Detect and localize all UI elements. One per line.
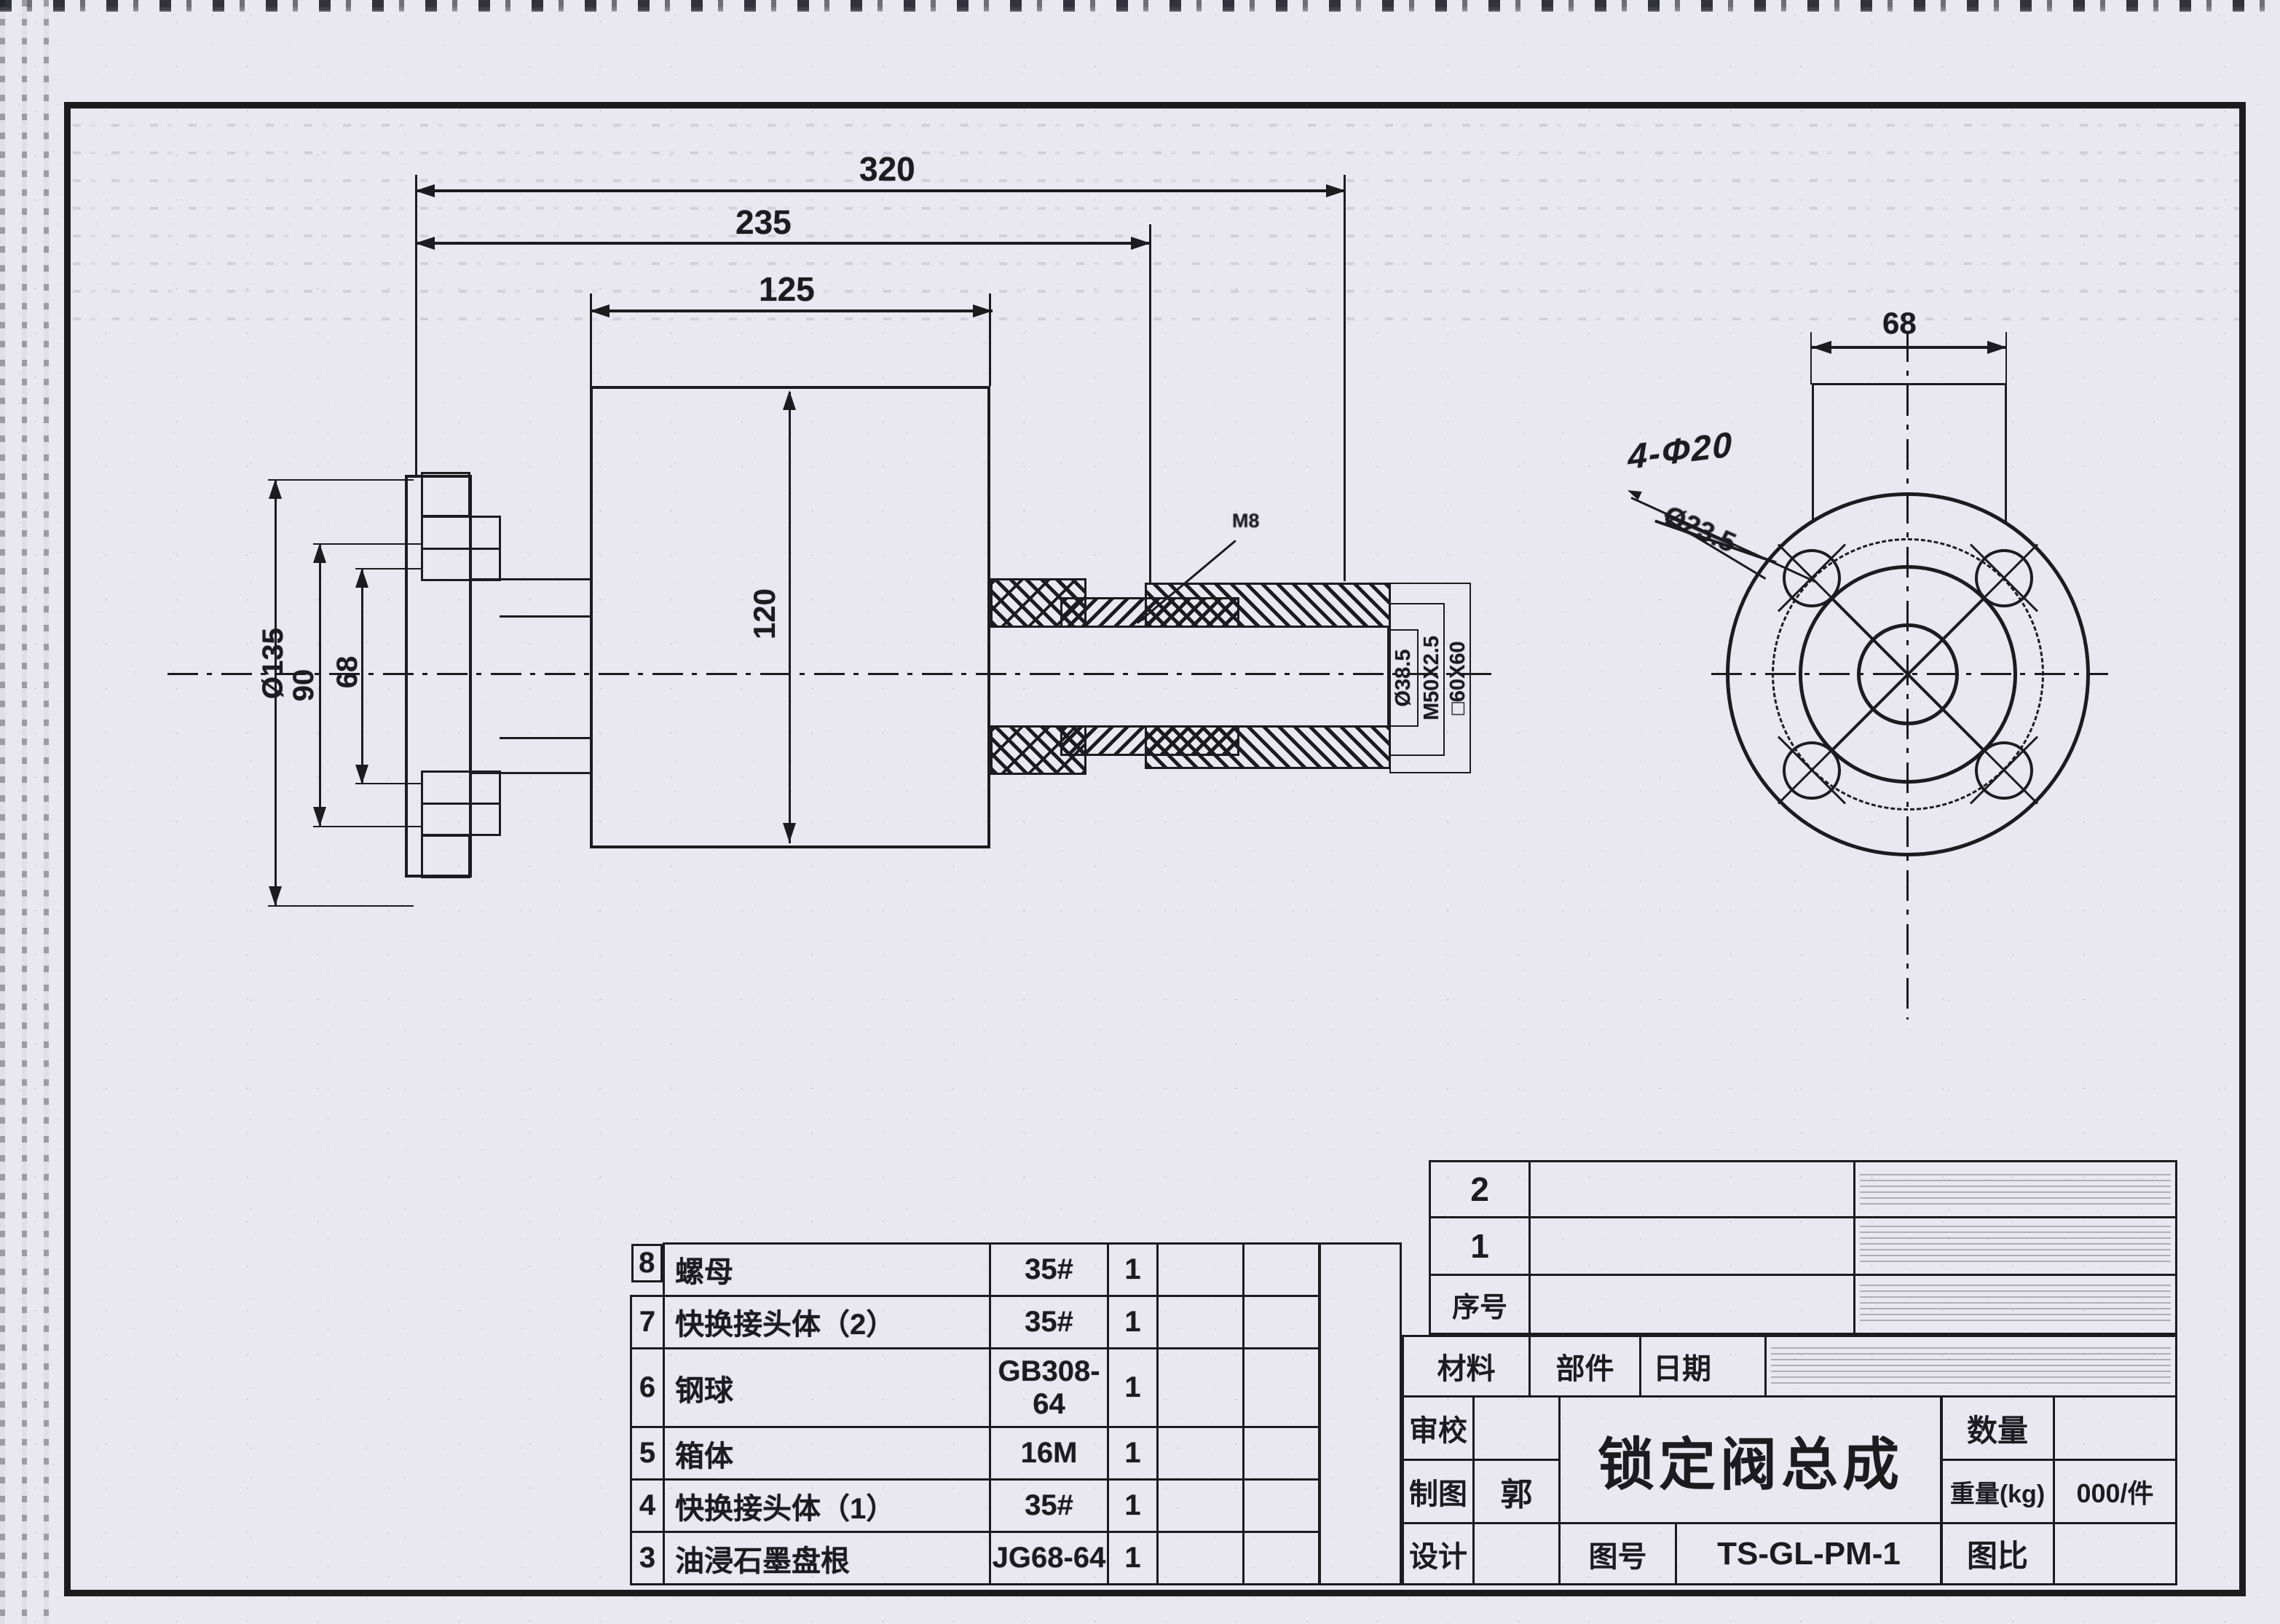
- design-value-cell: [1472, 1522, 1561, 1585]
- index-label-cell: 序号: [1429, 1274, 1531, 1335]
- square-body-left-edge: [1812, 383, 1814, 523]
- blank-cell: [1158, 1244, 1244, 1296]
- part-qty: 1: [1108, 1480, 1158, 1532]
- dim-68-label: 68: [332, 639, 363, 705]
- dim-120-arrow-down: [783, 823, 796, 843]
- dim-320-arrow-left: [415, 184, 435, 197]
- dwgno-value-cell: TS-GL-PM-1: [1675, 1522, 1943, 1585]
- dim-135-tick-top: [268, 479, 414, 481]
- weight-label-cell: 重量(kg): [1940, 1459, 2055, 1524]
- blank-cell: [1158, 1296, 1244, 1348]
- part-spec: GB308-64: [990, 1348, 1108, 1427]
- part-no: 4: [631, 1480, 664, 1532]
- index-cell-2: 2: [1429, 1160, 1531, 1218]
- part-name: 钢球: [664, 1348, 990, 1427]
- part-label-cell: 部件: [1528, 1335, 1641, 1398]
- part-spec: 16M: [990, 1427, 1108, 1480]
- end-view-vertical-centerline: [1906, 331, 1909, 1020]
- scale-value-cell: [2053, 1522, 2177, 1585]
- table-row: 8 螺母 35# 1: [631, 1244, 1320, 1296]
- part-name: 螺母: [664, 1244, 990, 1296]
- blank-cell: [1244, 1427, 1320, 1480]
- dim-90-tick-bottom: [313, 826, 421, 827]
- drawing-title-cell: 锁定阀总成: [1558, 1395, 1943, 1524]
- part-no: 7: [631, 1296, 664, 1348]
- weight-value-cell: 000/件: [2053, 1459, 2177, 1524]
- part-name: 快换接头体（2）: [664, 1296, 990, 1348]
- dim-90-arrow-up: [313, 543, 326, 563]
- end-dim-68-arrow-right: [1987, 341, 2007, 354]
- dim-120-arrow-up: [783, 390, 796, 410]
- dim-235-line: [415, 242, 1151, 245]
- dim-68-tick-bottom: [355, 783, 421, 784]
- dim-68-arrow-up: [355, 568, 368, 588]
- table-row: 7 快换接头体（2） 35# 1: [631, 1296, 1320, 1348]
- part-qty: 1: [1108, 1427, 1158, 1480]
- neck-bottom-inner-line: [500, 737, 590, 739]
- ext-line-left-common: [415, 175, 417, 475]
- part-spec: 35#: [990, 1480, 1108, 1532]
- dim-235-arrow-left: [415, 237, 435, 250]
- dim-135-arrow-down: [269, 886, 282, 906]
- blank-cell: [1244, 1296, 1320, 1348]
- dim-135-label: Ø135: [258, 616, 288, 711]
- qty-value-cell: [2053, 1395, 2177, 1461]
- dim-235-label: 235: [735, 202, 792, 242]
- design-label-cell: 设计: [1402, 1522, 1475, 1585]
- empty-strip: [1318, 1242, 1402, 1585]
- date-value-cell: [1764, 1335, 2177, 1398]
- dim-125-label: 125: [759, 269, 815, 309]
- index-mid-cell: [1528, 1274, 1855, 1335]
- index-right-cell: [1853, 1274, 2177, 1335]
- flange-bolt-top-head: [421, 472, 470, 517]
- neck-top-line: [472, 578, 590, 580]
- part-no: 5: [631, 1427, 664, 1480]
- blank-cell: [1244, 1532, 1320, 1585]
- index-right-cell: [1853, 1216, 2177, 1276]
- end-dim-68-ext-left: [1810, 332, 1812, 385]
- dim-120-label: 120: [748, 578, 781, 650]
- end-dim-68-line: [1812, 346, 2007, 349]
- dim-320-line: [415, 189, 1346, 192]
- blank-cell: [1158, 1427, 1244, 1480]
- dim-90-label: 90: [288, 653, 319, 718]
- dim-68-tick-top: [355, 568, 421, 569]
- review-label-cell: 审校: [1402, 1395, 1475, 1461]
- drafter-cell: 郭: [1472, 1459, 1561, 1524]
- dim-68-arrow-down: [355, 765, 368, 784]
- date-label-cell: 日期: [1639, 1335, 1767, 1398]
- dim-125-line: [590, 310, 993, 312]
- review-value-cell: [1472, 1395, 1561, 1461]
- union-nut-top: [1145, 583, 1391, 628]
- part-name: 箱体: [664, 1427, 990, 1480]
- blank-cell: [1244, 1480, 1320, 1532]
- square-body-top-edge: [1812, 383, 2007, 385]
- dwgno-label-cell: 图号: [1558, 1522, 1677, 1585]
- table-row: 3 油浸石墨盘根 JG68-64 1: [631, 1532, 1320, 1585]
- blank-cell: [1158, 1480, 1244, 1532]
- label-60x60: □60X60: [1445, 633, 1471, 723]
- label-m50x25: M50X2.5: [1419, 632, 1445, 724]
- part-no: 8: [631, 1244, 663, 1282]
- table-row: 4 快换接头体（1） 35# 1: [631, 1480, 1320, 1532]
- dim-320-arrow-right: [1326, 184, 1346, 197]
- index-right-cell: [1853, 1160, 2177, 1218]
- blank-cell: [1158, 1348, 1244, 1427]
- blueprint-page: 120 Ø135 90 68 320 235 125: [0, 0, 2280, 1624]
- material-label-cell: 材料: [1402, 1335, 1531, 1398]
- part-qty: 1: [1108, 1348, 1158, 1427]
- index-mid-cell: [1528, 1216, 1855, 1276]
- scan-noise-left: [0, 0, 61, 1624]
- end-dim-68-label: 68: [1882, 306, 1917, 341]
- parts-table: 8 螺母 35# 1 7 快换接头体（2） 35# 1 6 钢球 GB308-6…: [630, 1242, 1321, 1585]
- ext-line-320-right: [1344, 175, 1346, 581]
- table-row: 6 钢球 GB308-64 1: [631, 1348, 1320, 1427]
- scan-noise-bottom: [0, 0, 2280, 10]
- square-body-right-edge: [2005, 383, 2007, 523]
- blank-cell: [1244, 1348, 1320, 1427]
- part-name: 快换接头体（1）: [664, 1480, 990, 1532]
- label-dia385: Ø38.5: [1390, 634, 1416, 722]
- end-dim-68-ext-right: [2005, 332, 2007, 385]
- draft-label-cell: 制图: [1402, 1459, 1475, 1524]
- dim-125-arrow-left: [590, 304, 610, 318]
- union-nut-bottom: [1145, 725, 1391, 769]
- ext-line-125-right: [989, 293, 991, 386]
- dim-90-arrow-down: [313, 807, 326, 827]
- flange-bolt-bottom-head: [421, 835, 470, 878]
- ext-line-235-right: [1149, 224, 1151, 583]
- index-mid-cell: [1528, 1160, 1855, 1218]
- ext-line-125-left: [590, 293, 592, 386]
- index-cell-1: 1: [1429, 1216, 1531, 1276]
- bore-bottom-line: [990, 725, 1389, 728]
- part-name: 油浸石墨盘根: [664, 1532, 990, 1585]
- dim-320-label: 320: [859, 149, 915, 189]
- dim-90-tick-top: [313, 543, 421, 545]
- blank-cell: [1158, 1532, 1244, 1585]
- part-qty: 1: [1108, 1296, 1158, 1348]
- blank-cell: [1244, 1244, 1320, 1296]
- dim-135-tick-bottom: [268, 905, 414, 907]
- part-qty: 1: [1108, 1532, 1158, 1585]
- bore-top-line: [990, 626, 1389, 628]
- part-spec: JG68-64: [990, 1532, 1108, 1585]
- end-view-horizontal-centerline: [1711, 673, 2108, 675]
- part-qty: 1: [1108, 1244, 1158, 1296]
- neck-bottom-line: [472, 772, 590, 774]
- scale-label-cell: 图比: [1940, 1522, 2055, 1585]
- dim-120-line: [789, 392, 791, 843]
- end-dim-68-arrow-left: [1812, 341, 1831, 354]
- qty-label-cell: 数量: [1940, 1395, 2055, 1461]
- part-no: 3: [631, 1532, 664, 1585]
- dim-235-arrow-right: [1131, 237, 1151, 250]
- neck-top-inner-line: [500, 615, 590, 618]
- part-spec: 35#: [990, 1244, 1108, 1296]
- part-no: 6: [631, 1348, 664, 1427]
- part-spec: 35#: [990, 1296, 1108, 1348]
- m8-callout-label: M8: [1232, 510, 1260, 532]
- table-row: 5 箱体 16M 1: [631, 1427, 1320, 1480]
- flange-bolt-top-washer: [422, 548, 500, 550]
- dim-135-arrow-up: [269, 479, 282, 499]
- flange-bolt-bottom-washer: [422, 803, 500, 805]
